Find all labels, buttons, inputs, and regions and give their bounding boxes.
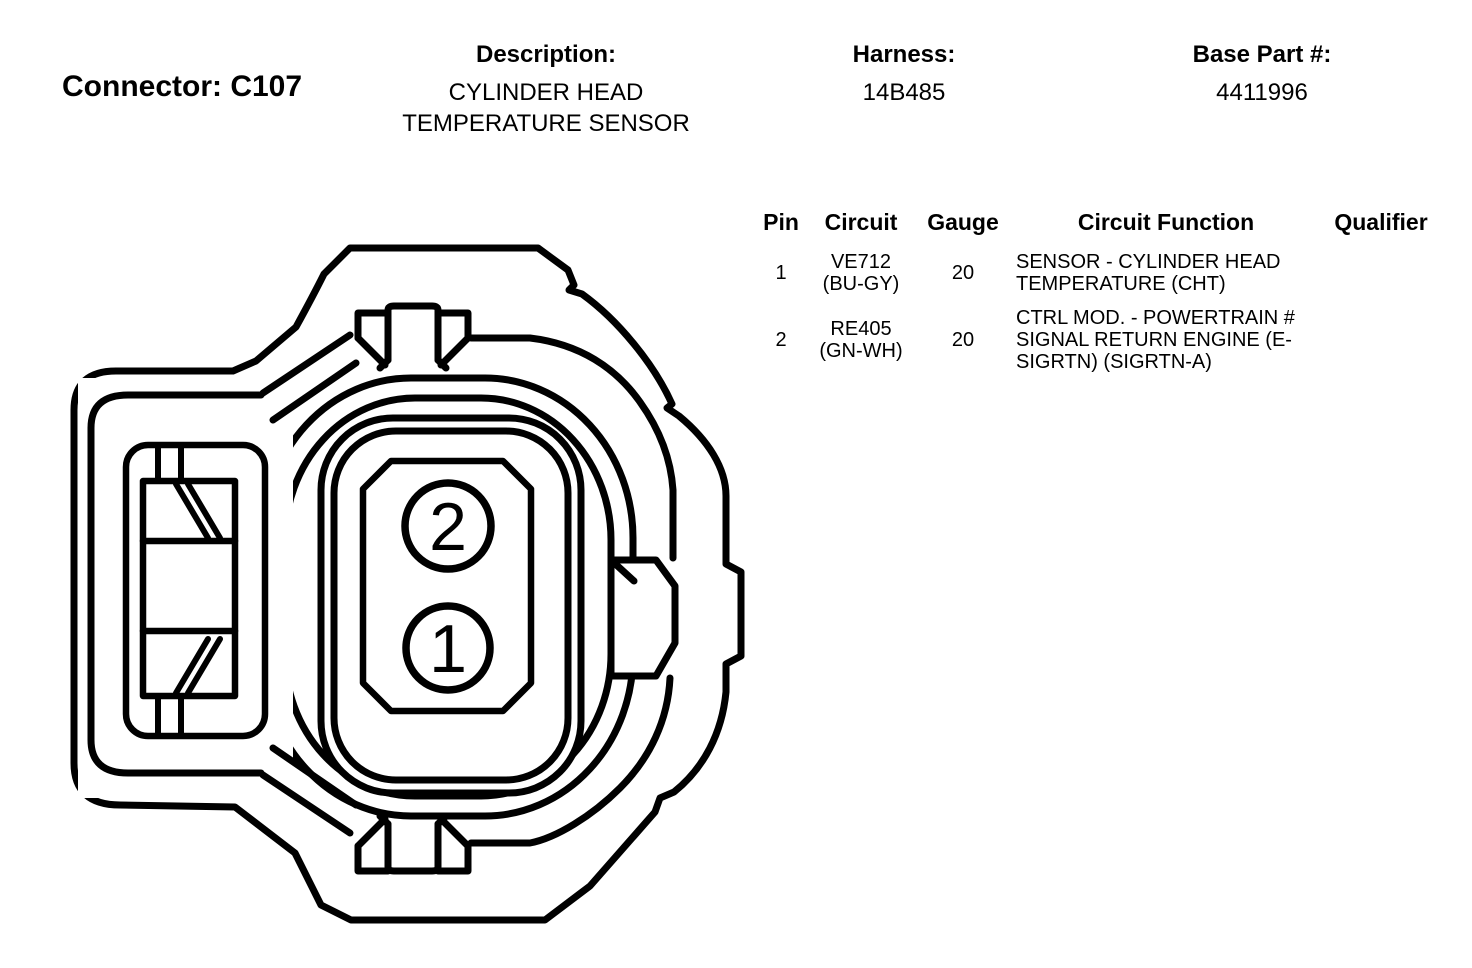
right-key-tab [611,560,675,676]
harness-label: Harness: [814,41,994,69]
pin-number-cell: 1 [751,262,811,284]
pin-number-cell: 2 [751,329,811,351]
connector-face-diagram: 2 1 [58,228,758,948]
circuit-color: (BU-GY) [806,273,916,295]
description-value: CYLINDER HEAD TEMPERATURE SENSOR [376,77,716,139]
pin-2-label: 2 [429,489,467,565]
base-part-block: Base Part #: 4411996 [1142,41,1382,108]
harness-value: 14B485 [814,77,994,108]
connector-pinout-page: { "header": { "connector_label": "Connec… [0,0,1472,968]
circuit-id: RE405 [806,318,916,340]
gauge-cell: 20 [913,329,1013,351]
circuit-function-cell: SENSOR - CYLINDER HEAD TEMPERATURE (CHT) [1016,251,1316,295]
connector-title: Connector: C107 [62,70,302,104]
circuit-id: VE712 [806,251,916,273]
circuit-color: (GN-WH) [806,340,916,362]
col-header-function: Circuit Function [1016,209,1316,236]
circuit-cell: VE712 (BU-GY) [806,251,916,295]
latch-block [143,481,235,696]
base-part-value: 4411996 [1142,77,1382,108]
col-header-gauge: Gauge [913,209,1013,236]
circuit-cell: RE405 (GN-WH) [806,318,916,362]
col-header-pin: Pin [751,209,811,236]
description-label: Description: [376,41,716,69]
base-part-label: Base Part #: [1142,41,1382,69]
description-block: Description: CYLINDER HEAD TEMPERATURE S… [376,41,716,139]
circuit-function-cell: CTRL MOD. - POWERTRAIN # SIGNAL RETURN E… [1016,307,1316,373]
col-header-circuit: Circuit [806,209,916,236]
col-header-qualifier: Qualifier [1316,209,1446,236]
harness-block: Harness: 14B485 [814,41,994,108]
gauge-cell: 20 [913,262,1013,284]
pin-1-label: 1 [429,611,467,687]
